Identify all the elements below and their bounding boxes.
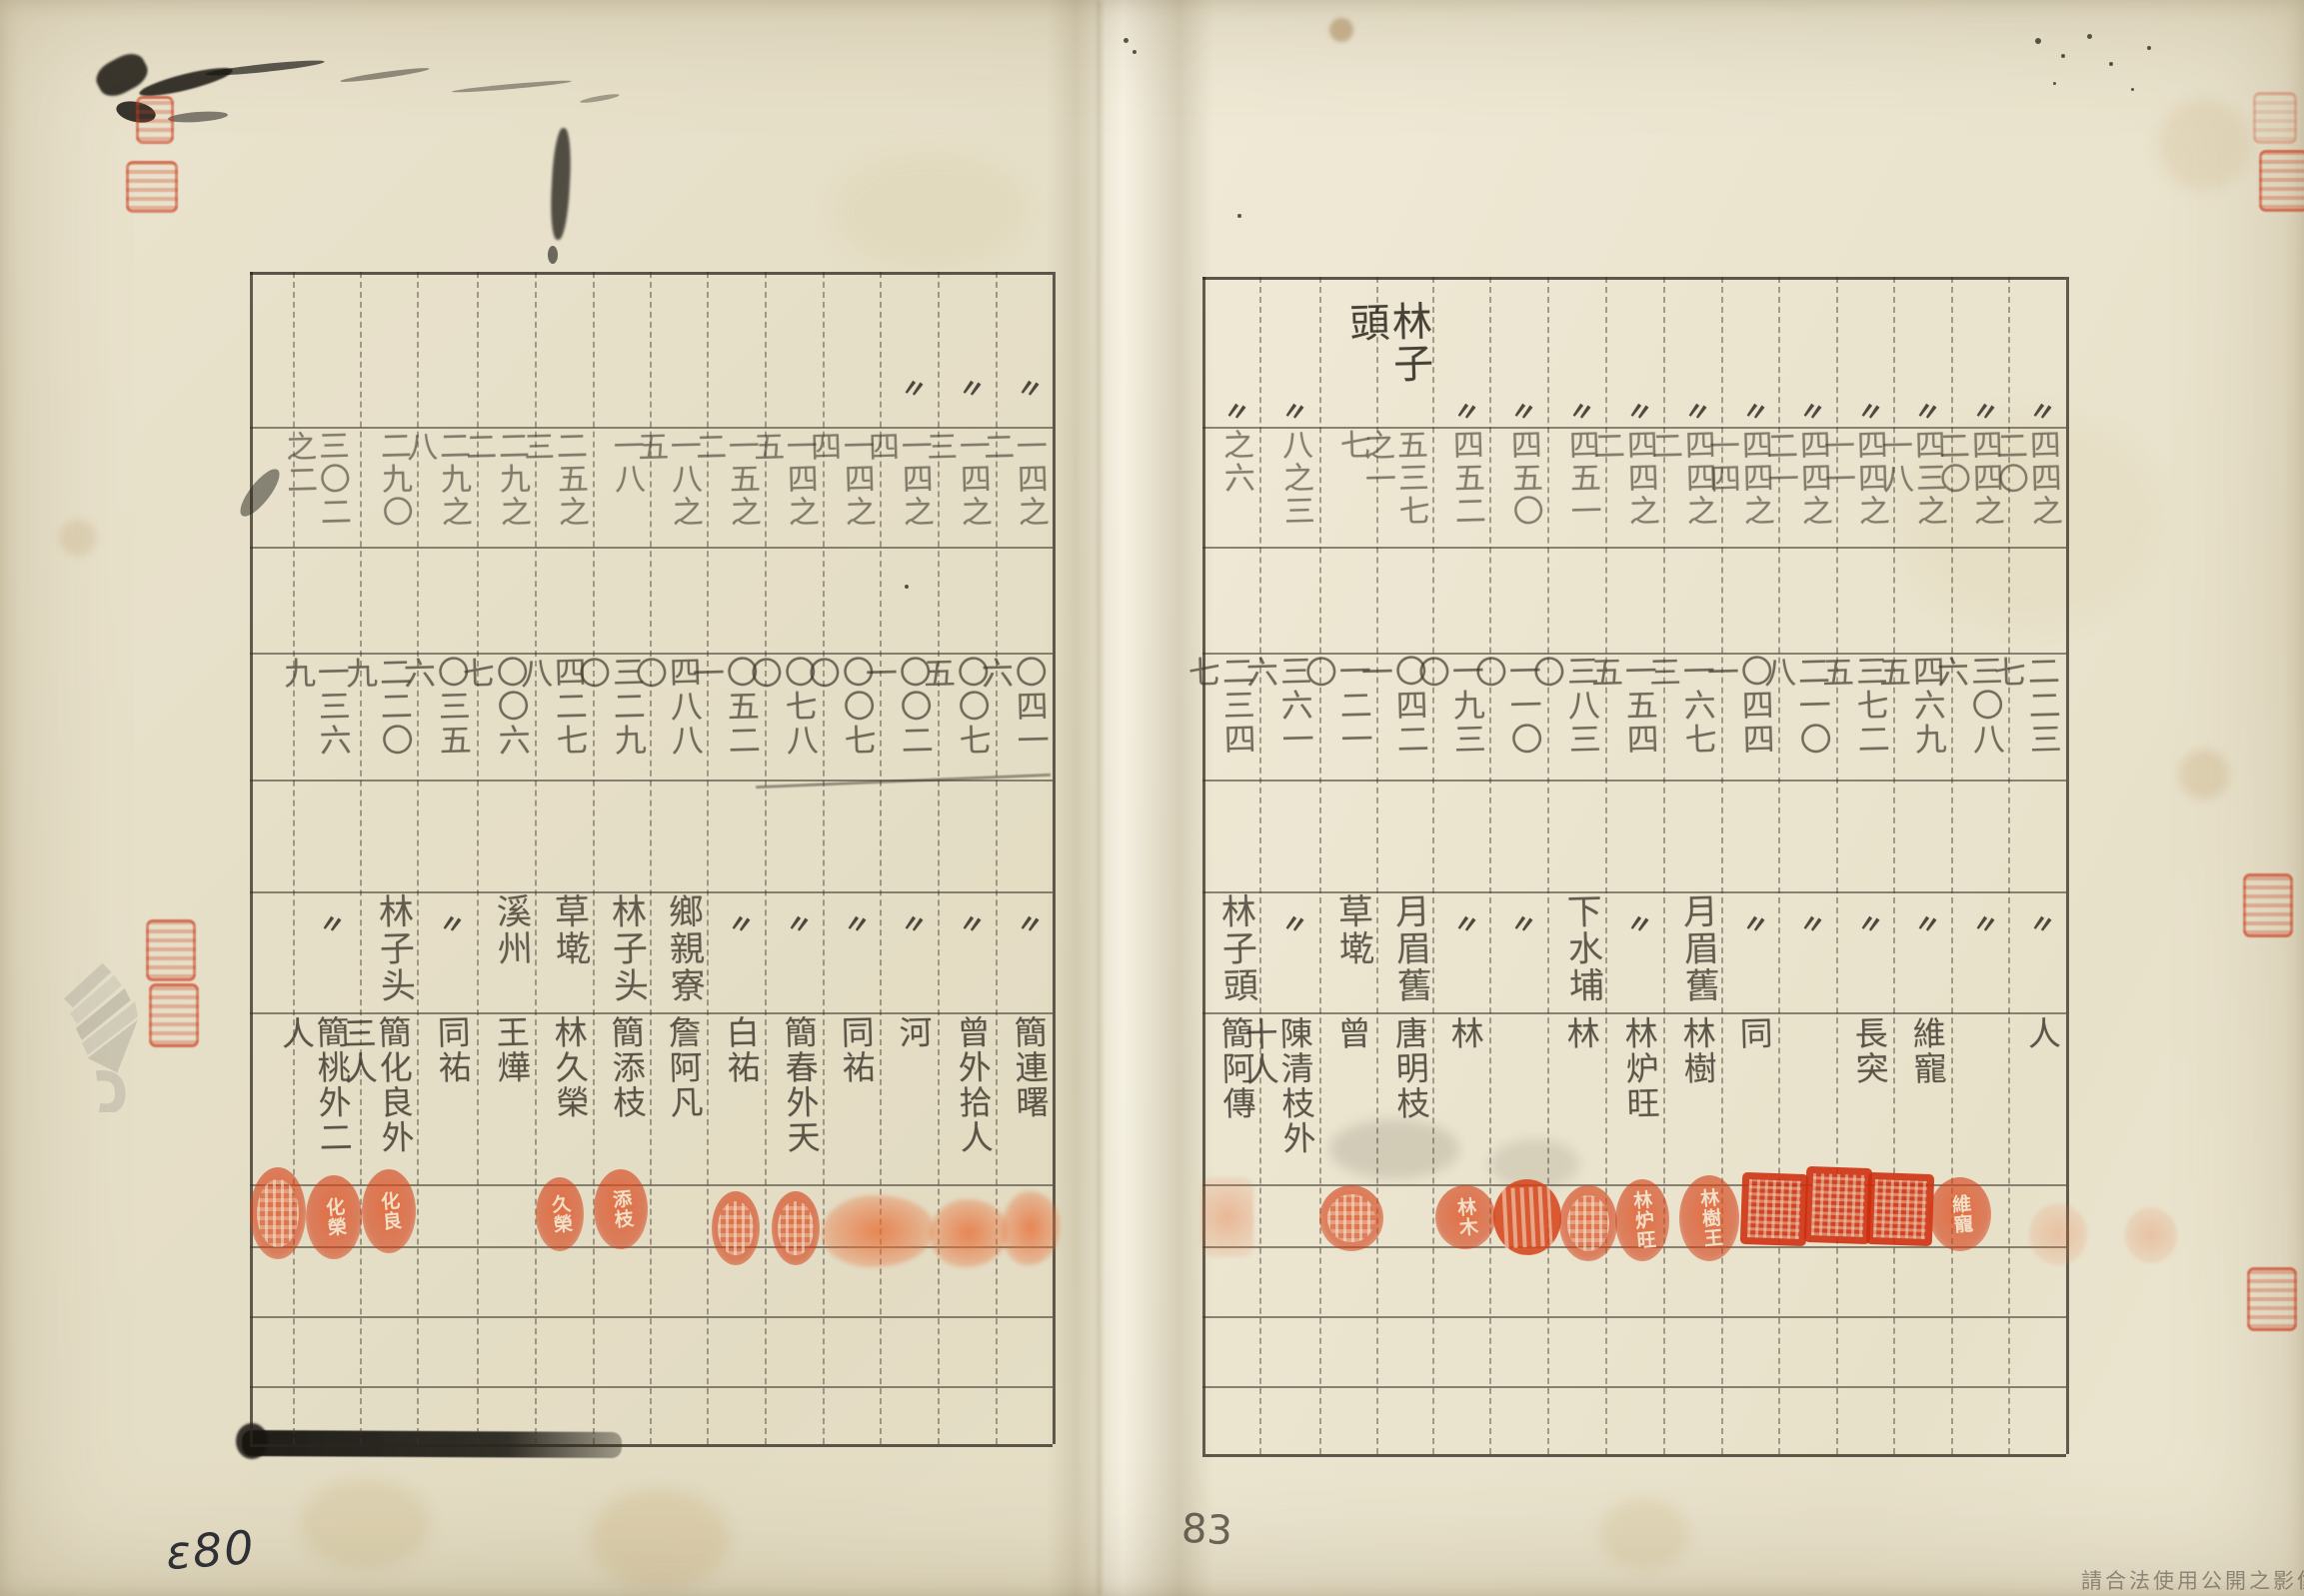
grid-line bbox=[1202, 1386, 2066, 1388]
left-place-cell-4: 〃 bbox=[428, 906, 466, 948]
speck bbox=[2131, 88, 2134, 91]
ink-smudge bbox=[168, 110, 229, 124]
right-place-cell-11: 〃 bbox=[1788, 906, 1826, 948]
ink-smudge bbox=[205, 58, 325, 78]
grid-line bbox=[1202, 277, 1205, 1454]
grid-line bbox=[1202, 780, 2066, 782]
paper-stain bbox=[1329, 18, 1353, 42]
right-area-cell-15: 二二三七 bbox=[2013, 654, 2060, 777]
left-name-cell-10: 簡春外天 bbox=[769, 1014, 819, 1183]
right-place-cell-3: 草墘 bbox=[1322, 892, 1372, 1010]
grid-line bbox=[1319, 277, 1321, 1454]
grid-line bbox=[1202, 1316, 2066, 1318]
ink-smudge bbox=[137, 63, 234, 102]
left-name-cell-5: 王燁 bbox=[481, 1014, 531, 1183]
grid-line bbox=[1259, 277, 1261, 1454]
paper-stain bbox=[60, 520, 96, 556]
archive-stamp bbox=[126, 161, 178, 213]
right-place-cell-1: 林子頭 bbox=[1205, 892, 1255, 1010]
left-header-cell-14: 〃 bbox=[1006, 371, 1044, 413]
center-fold bbox=[1046, 0, 1213, 1596]
paper-stain bbox=[300, 1479, 430, 1569]
grid-line bbox=[250, 1184, 1053, 1186]
archive-stamp bbox=[149, 983, 199, 1047]
left-place-cell-8: 鄉親寮 bbox=[653, 892, 703, 1010]
left-name-cell-3: 簡化良外三人 bbox=[364, 1014, 414, 1183]
archive-stamp bbox=[2243, 873, 2293, 937]
left-name-cell-12: 河 bbox=[884, 1014, 934, 1183]
right-lot-cell-6: 四五〇 bbox=[1495, 428, 1541, 545]
right-place-cell-6: 〃 bbox=[1499, 906, 1537, 948]
left-name-cell-7: 簡添枝 bbox=[597, 1014, 647, 1183]
grid-line bbox=[1202, 1012, 2066, 1014]
right-name-cell-4: 唐明枝 bbox=[1379, 1015, 1429, 1184]
right-name-cell-15: 人 bbox=[2012, 1015, 2062, 1184]
speck bbox=[2147, 46, 2151, 50]
paper-stain bbox=[1599, 1499, 1689, 1569]
right-place-cell-2: 〃 bbox=[1270, 906, 1308, 948]
grid-line bbox=[250, 1444, 1053, 1447]
grid-line bbox=[250, 1246, 1053, 1248]
page-number-left: ε80 bbox=[164, 1520, 257, 1580]
left-place-cell-11: 〃 bbox=[833, 906, 871, 948]
ink-smudge bbox=[114, 98, 157, 126]
page-number-right: 83 bbox=[1180, 1506, 1233, 1555]
ink-drip bbox=[548, 246, 558, 264]
ink-drip bbox=[549, 128, 573, 241]
left-place-cell-2: 〃 bbox=[308, 906, 346, 948]
right-lot-cell-15: 四四之二〇 bbox=[2014, 428, 2060, 545]
right-name-cell-10: 同 bbox=[1725, 1015, 1775, 1184]
left-name-cell-8: 詹阿凡 bbox=[654, 1014, 704, 1183]
left-name-cell-4: 同祐 bbox=[422, 1014, 472, 1183]
grid-line bbox=[250, 272, 1053, 275]
right-place-cell-7: 下水埔 bbox=[1551, 892, 1601, 1010]
archive-stamp bbox=[2253, 92, 2297, 144]
left-place-cell-5: 溪州 bbox=[481, 892, 531, 1010]
grid-line bbox=[1202, 277, 2066, 280]
ledger-table-left: 〃〃〃三〇二之二二九〇二九之八二九之二二五之三一八一八之五一五之二一四之五一四之… bbox=[250, 272, 1053, 1444]
name-seal bbox=[2125, 1207, 2177, 1263]
grid-line bbox=[250, 653, 1053, 655]
left-place-cell-9: 〃 bbox=[717, 906, 755, 948]
right-lot-cell-4: 五三七之一 bbox=[1381, 428, 1427, 545]
right-place-cell-13: 〃 bbox=[1903, 906, 1941, 948]
ink-streak bbox=[340, 66, 430, 84]
left-lot-cell-2: 三〇二之二 bbox=[303, 429, 349, 544]
speck bbox=[2087, 34, 2092, 39]
grid-line bbox=[1547, 277, 1549, 1454]
right-place-cell-15: 〃 bbox=[2018, 906, 2056, 948]
left-place-cell-3: 林子头 bbox=[363, 892, 413, 1010]
left-lot-cell-14: 一四之二 bbox=[1001, 429, 1047, 544]
grid-line bbox=[1202, 1454, 2066, 1457]
grid-line bbox=[1432, 277, 1434, 1454]
left-place-cell-7: 林子头 bbox=[596, 892, 646, 1010]
paper-stain bbox=[2179, 750, 2229, 799]
right-lot-cell-5: 四五二 bbox=[1437, 428, 1483, 545]
grid-line bbox=[360, 272, 362, 1444]
grid-line bbox=[1202, 547, 2066, 549]
left-name-cell-9: 白祐 bbox=[711, 1014, 761, 1183]
left-place-cell-6: 草墘 bbox=[539, 892, 589, 1010]
right-name-cell-2: 陳清枝外十人 bbox=[1264, 1015, 1314, 1184]
grid-line bbox=[2066, 277, 2069, 1454]
fold-shadow bbox=[1098, 0, 1102, 1596]
right-name-cell-7: 林 bbox=[1551, 1015, 1601, 1184]
speck bbox=[1237, 214, 1241, 218]
usage-notice: 請合法使用公開之影像 bbox=[2081, 1565, 2304, 1595]
grid-line bbox=[250, 780, 1053, 782]
paper-stain bbox=[830, 150, 1030, 270]
speck bbox=[2109, 62, 2113, 66]
ledger-table-right: 〃〃林子頭〃〃〃〃〃〃〃〃〃〃〃之六八之三七五三七之一四五二四五〇四五一四四之二… bbox=[1202, 277, 2066, 1454]
ink-smudge bbox=[91, 48, 153, 102]
grid-line bbox=[1202, 1246, 2066, 1248]
left-name-cell-14: 簡連曙 bbox=[1000, 1014, 1050, 1183]
archive-stamp bbox=[2259, 150, 2304, 212]
left-place-cell-10: 〃 bbox=[775, 906, 813, 948]
grid-line bbox=[250, 272, 253, 1444]
grid-line bbox=[250, 1316, 1053, 1318]
left-area-cell-14: 〇四一六 bbox=[1001, 655, 1048, 778]
scanned-ledger-spread: ε80 83 請合法使用公開之影像 〃〃〃三〇二之二二九〇二九之八二九之二二五之… bbox=[0, 0, 2304, 1596]
right-place-cell-9: 月眉舊 bbox=[1667, 892, 1717, 1010]
right-place-cell-10: 〃 bbox=[1731, 906, 1769, 948]
right-header-cell-4: 林子頭 bbox=[1376, 300, 1431, 423]
right-name-cell-9: 林樹 bbox=[1667, 1015, 1717, 1184]
left-name-cell-6: 林久榮 bbox=[539, 1014, 589, 1183]
left-name-cell-13: 曾外拾人 bbox=[942, 1014, 992, 1183]
archive-stamp bbox=[136, 96, 174, 144]
right-place-cell-12: 〃 bbox=[1846, 906, 1884, 948]
archive-stamp bbox=[146, 919, 196, 981]
right-place-cell-5: 〃 bbox=[1442, 906, 1480, 948]
right-name-cell-3: 曾 bbox=[1323, 1015, 1373, 1184]
left-lot-cell-6: 二五之三 bbox=[541, 429, 587, 544]
right-place-cell-4: 月眉舊 bbox=[1379, 892, 1429, 1010]
grid-line bbox=[1489, 277, 1491, 1454]
paper-stain bbox=[590, 1489, 730, 1589]
speck bbox=[2035, 38, 2041, 44]
left-place-cell-13: 〃 bbox=[948, 906, 986, 948]
speck bbox=[2053, 82, 2056, 85]
right-name-cell-13: 維寵 bbox=[1897, 1015, 1947, 1184]
grid-line bbox=[250, 1386, 1053, 1388]
grid-line bbox=[1053, 272, 1056, 1444]
archive-stamp bbox=[2247, 1267, 2297, 1331]
ink-streak bbox=[580, 93, 620, 105]
right-name-cell-5: 林 bbox=[1436, 1015, 1486, 1184]
left-name-cell-11: 同祐 bbox=[827, 1014, 877, 1183]
right-place-cell-8: 〃 bbox=[1615, 906, 1653, 948]
right-name-cell-12: 長突 bbox=[1840, 1015, 1890, 1184]
grid-line bbox=[250, 547, 1053, 549]
left-header-cell-13: 〃 bbox=[948, 371, 986, 413]
library-watermark-icon bbox=[52, 947, 147, 1112]
ink-streak bbox=[452, 79, 572, 94]
grid-line bbox=[593, 272, 595, 1444]
speck bbox=[2061, 54, 2065, 58]
right-lot-cell-2: 八之三 bbox=[1266, 428, 1312, 545]
left-place-cell-14: 〃 bbox=[1006, 906, 1044, 948]
left-header-cell-12: 〃 bbox=[890, 371, 928, 413]
right-name-cell-8: 林炉旺 bbox=[1609, 1015, 1659, 1184]
right-place-cell-14: 〃 bbox=[1961, 906, 1999, 948]
right-lot-cell-1: 之六 bbox=[1207, 428, 1253, 545]
paper-stain bbox=[2159, 100, 2249, 190]
left-place-cell-12: 〃 bbox=[890, 906, 928, 948]
grid-line bbox=[250, 427, 1053, 429]
